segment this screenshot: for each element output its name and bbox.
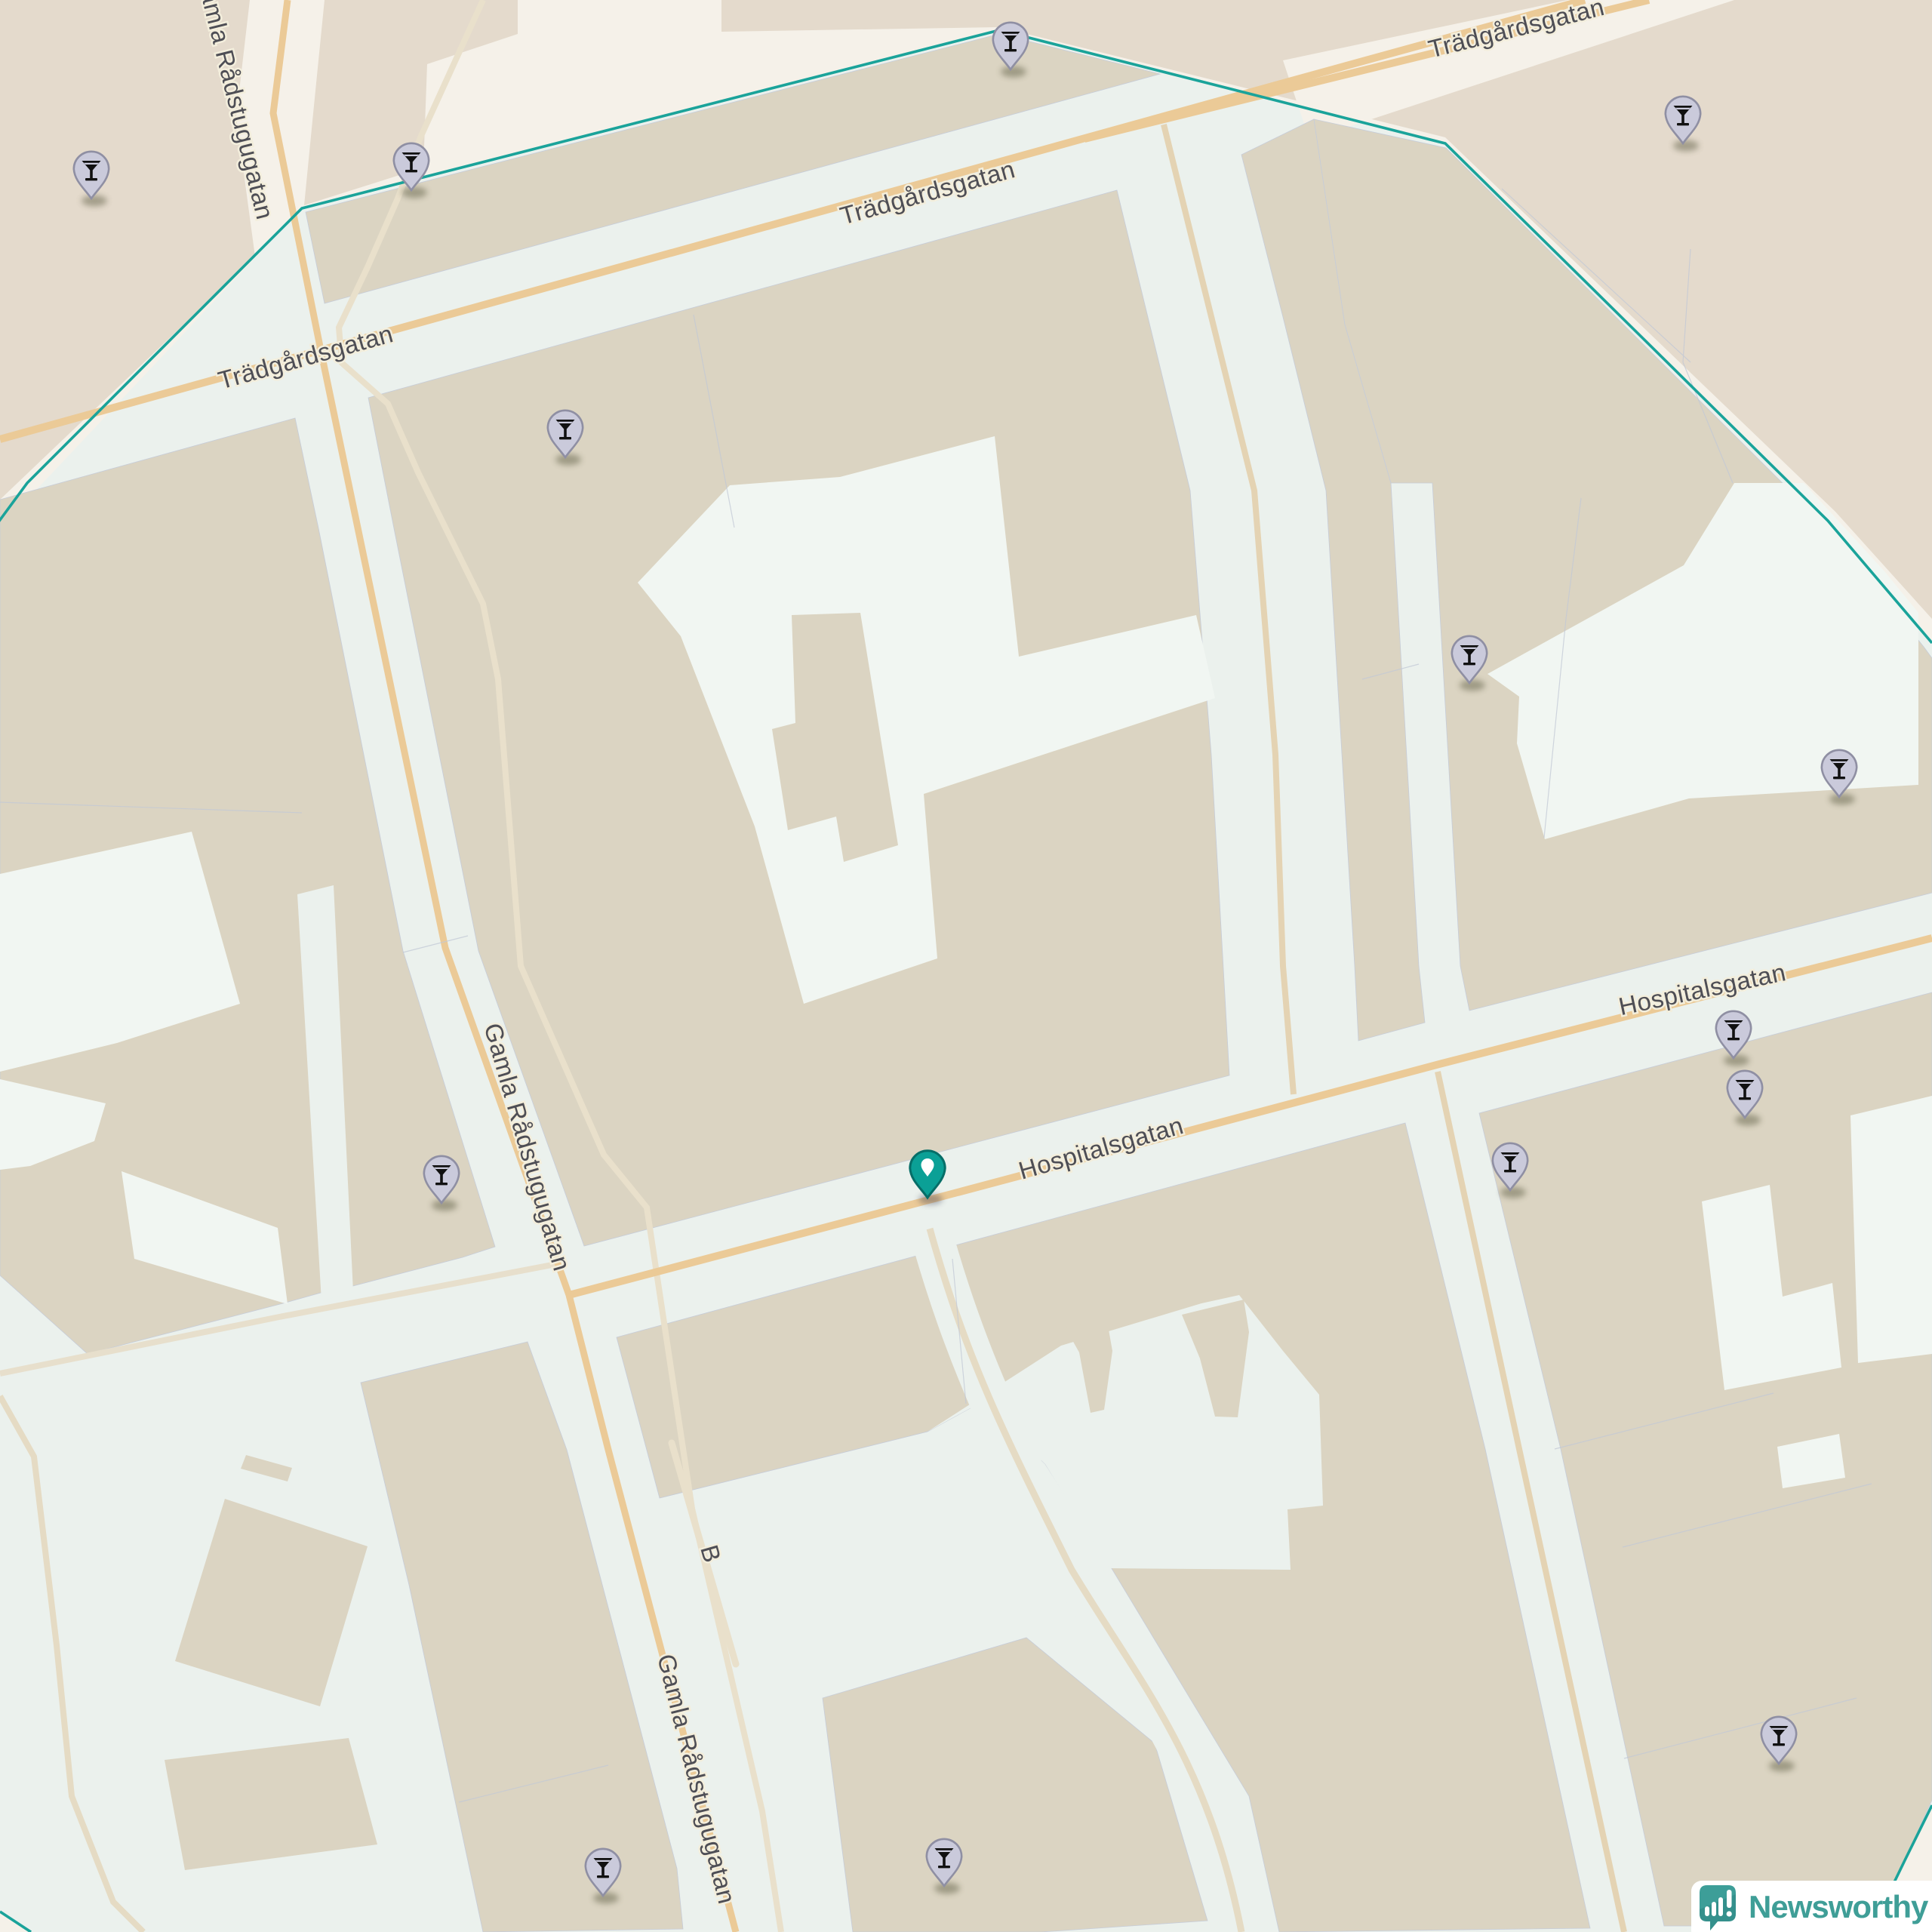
svg-text:Newsworthy: Newsworthy [1749,1889,1929,1924]
